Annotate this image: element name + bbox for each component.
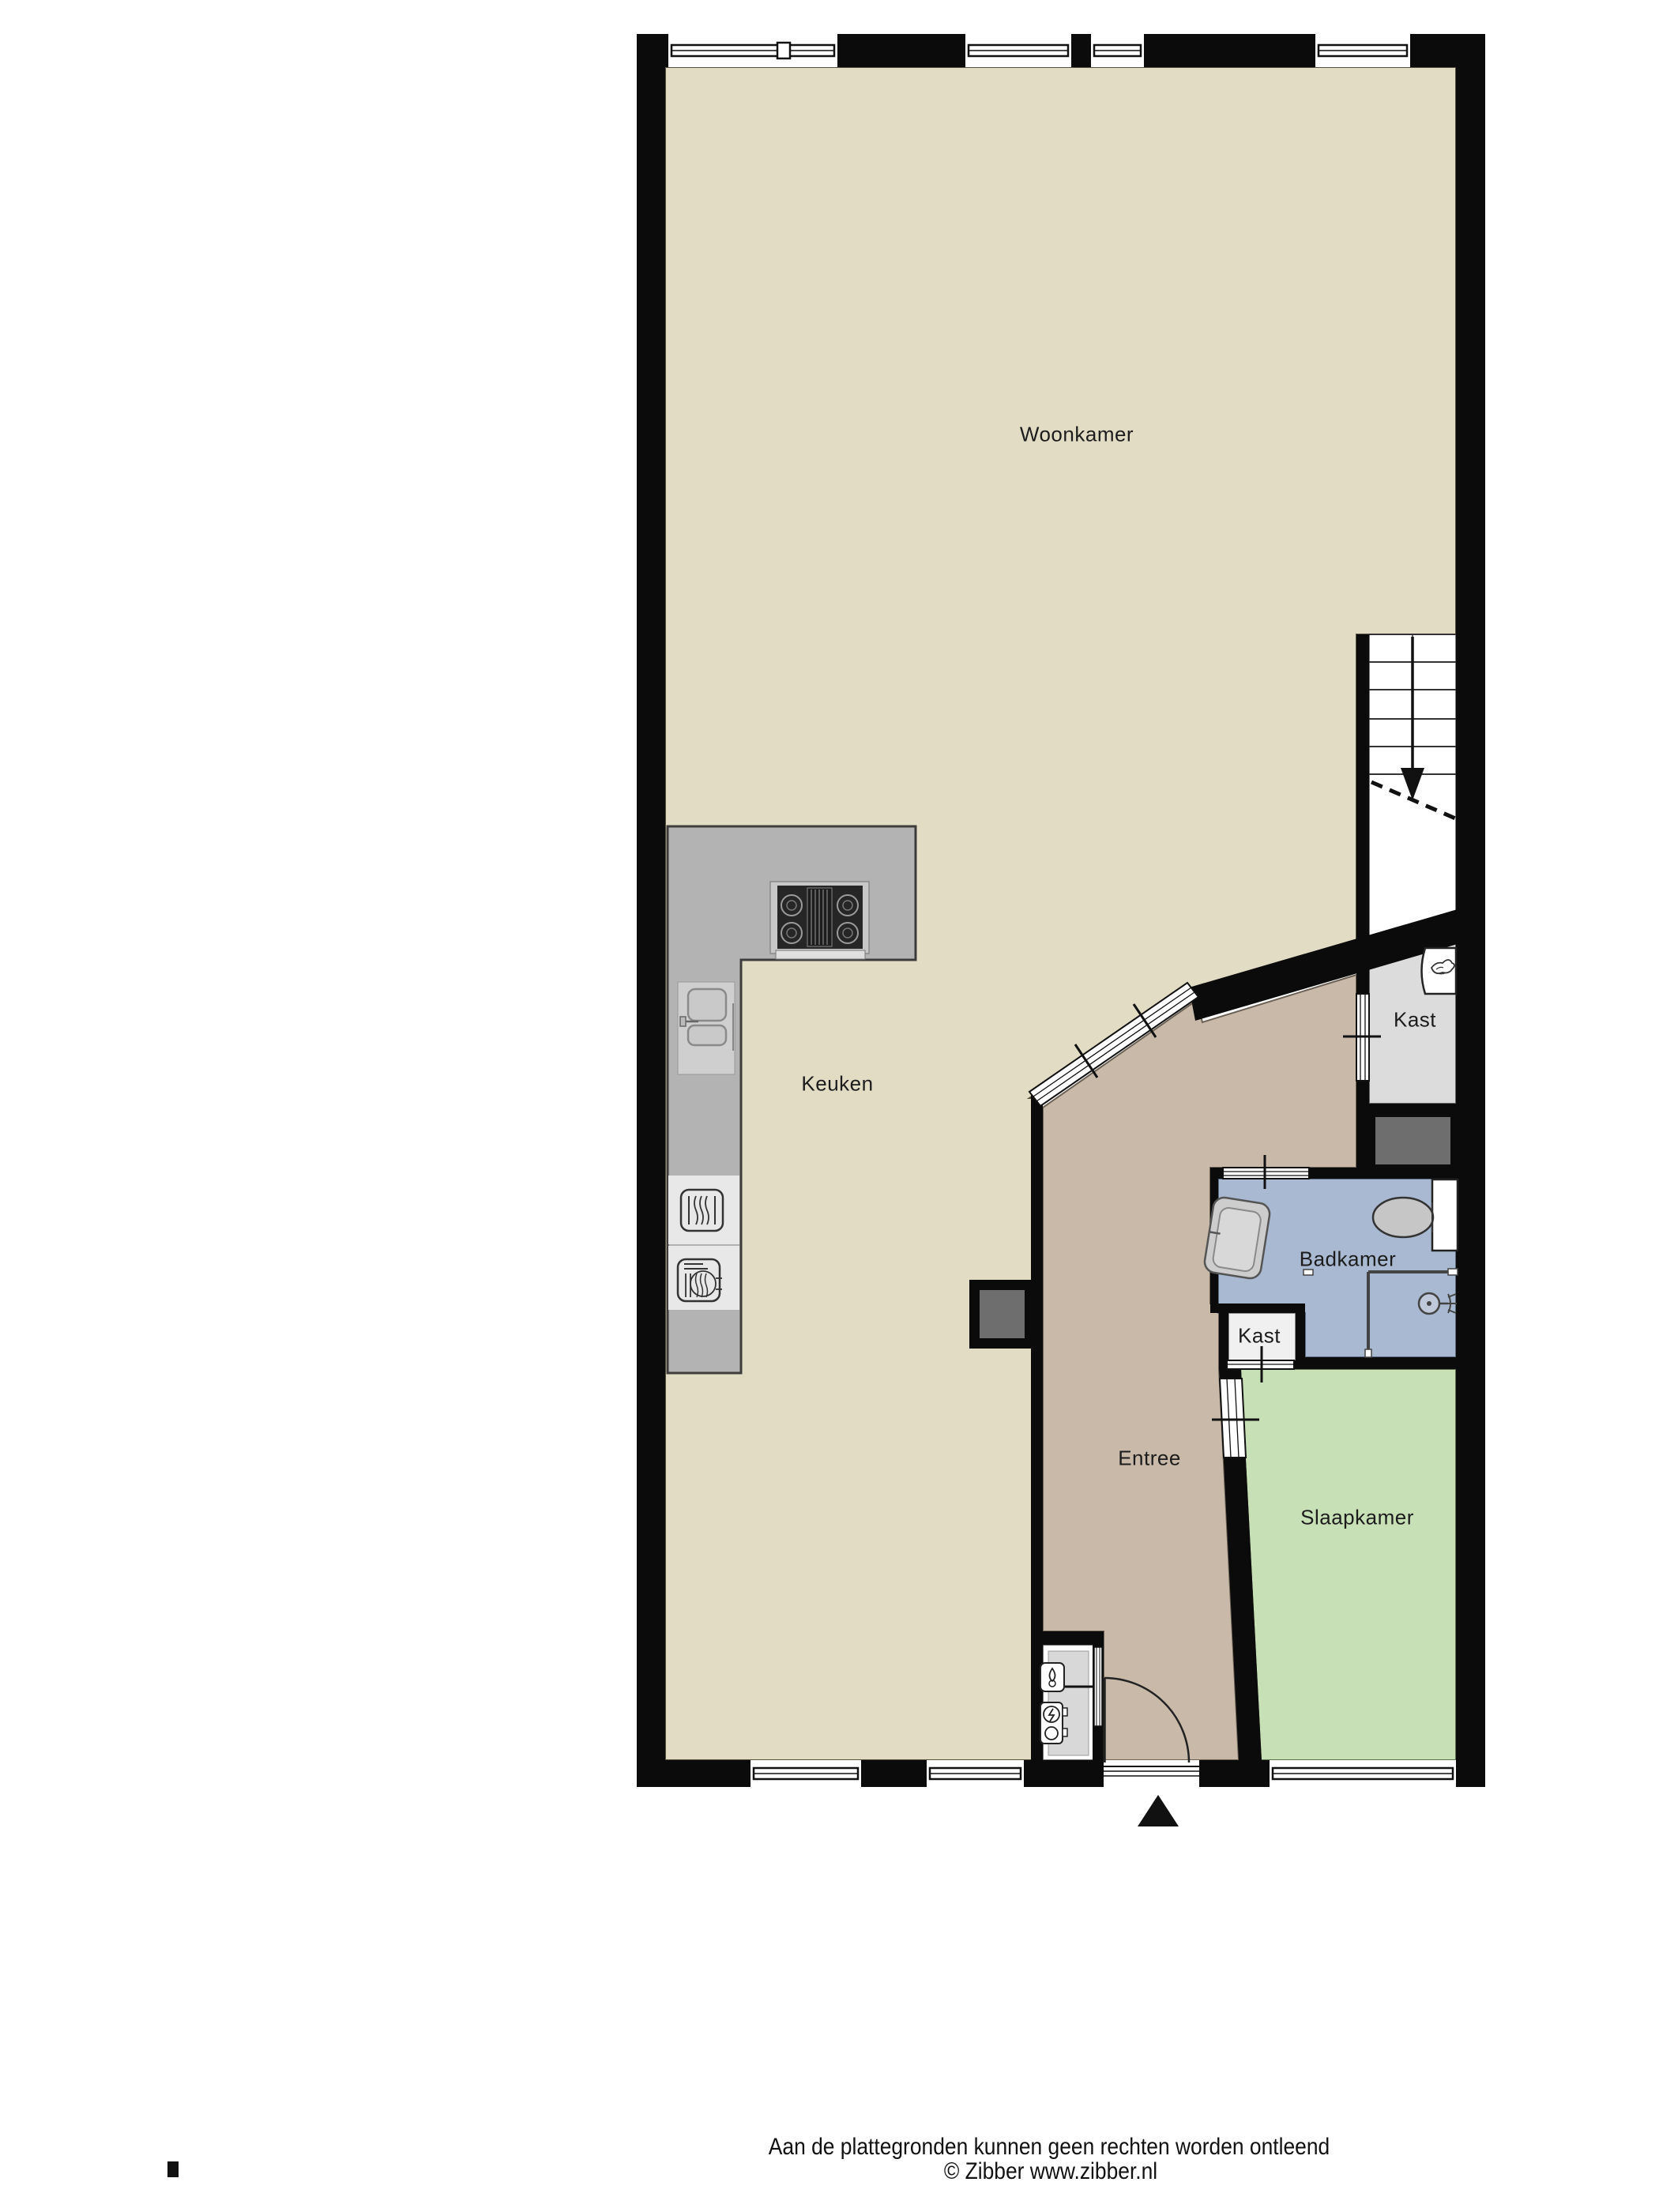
footer-disclaimer: Aan de plattegronden kunnen geen rechten… — [769, 2134, 1330, 2161]
duct-keuken-fill — [980, 1290, 1025, 1338]
wall-kast-onder-right — [1296, 1303, 1305, 1360]
stove-icon — [770, 882, 869, 959]
wall-stairwell — [1356, 634, 1369, 1179]
window-top-3 — [1091, 34, 1144, 67]
electric-meter-icon — [1040, 1702, 1067, 1744]
room-label-badkamer: Badkamer — [1300, 1247, 1397, 1272]
page-mark — [167, 2161, 179, 2177]
duct-kast-fill — [1375, 1117, 1450, 1164]
floorplan-canvas — [0, 0, 1659, 2212]
window-bottom-2 — [927, 1760, 1024, 1787]
water-meter-icon — [1040, 1663, 1064, 1691]
window-top-1 — [668, 34, 837, 67]
room-label-kast-onder: Kast — [1238, 1324, 1281, 1349]
footer-copyright: © Zibber www.zibber.nl — [944, 2158, 1157, 2185]
window-top-4 — [1315, 34, 1410, 67]
room-label-keuken: Keuken — [801, 1072, 873, 1097]
floorplan-page: Woonkamer Keuken Kast Badkamer Kast Entr… — [0, 0, 1659, 2212]
room-slaapkamer-floor — [1240, 1369, 1456, 1760]
room-label-entree: Entree — [1118, 1446, 1181, 1471]
sink-icon — [678, 982, 735, 1074]
wall-badkamer-step — [1210, 1303, 1305, 1313]
room-label-slaapkamer: Slaapkamer — [1300, 1506, 1414, 1530]
entrance-arrow-icon — [1138, 1795, 1179, 1826]
wall-left — [637, 34, 665, 1787]
washbasin-icon — [1203, 1196, 1271, 1280]
wall-kast-shaft — [1369, 1104, 1456, 1112]
window-top-2 — [965, 34, 1071, 67]
wall-badkamer-bottom — [1296, 1357, 1456, 1369]
room-label-woonkamer: Woonkamer — [1020, 423, 1134, 447]
counter-light-1 — [668, 1176, 739, 1244]
wall-meterkast-top — [1031, 1631, 1104, 1645]
entrance-opening — [1104, 1760, 1199, 1787]
window-slaapkamer — [1270, 1760, 1456, 1787]
window-bottom-1 — [750, 1760, 861, 1787]
boiler-icon — [1422, 948, 1457, 994]
wall-entree-keuken — [1031, 1093, 1043, 1760]
room-label-kast-boven: Kast — [1394, 1008, 1436, 1033]
